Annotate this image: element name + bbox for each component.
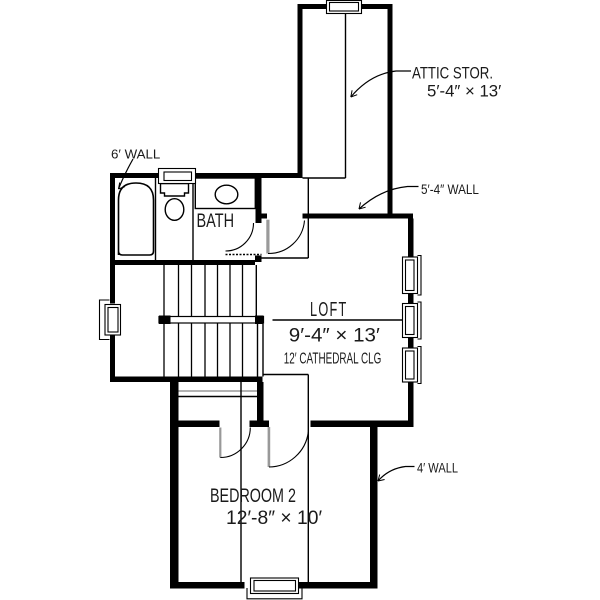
- svg-text:6′ WALL: 6′ WALL: [111, 147, 160, 162]
- svg-text:5′-4″ WALL: 5′-4″ WALL: [421, 181, 479, 197]
- svg-text:12′-8″ × 10′: 12′-8″ × 10′: [226, 507, 322, 529]
- svg-text:LOFT: LOFT: [310, 298, 348, 321]
- svg-text:12′ CATHEDRAL CLG: 12′ CATHEDRAL CLG: [284, 349, 382, 367]
- svg-text:4′ WALL: 4′ WALL: [417, 460, 458, 476]
- svg-text:9′-4″ × 13′: 9′-4″ × 13′: [289, 325, 380, 346]
- svg-text:ATTIC STOR.: ATTIC STOR.: [412, 64, 493, 83]
- svg-text:BATH: BATH: [197, 210, 235, 231]
- svg-text:5′-4″ × 13′: 5′-4″ × 13′: [427, 82, 501, 101]
- svg-text:BEDROOM 2: BEDROOM 2: [210, 484, 296, 507]
